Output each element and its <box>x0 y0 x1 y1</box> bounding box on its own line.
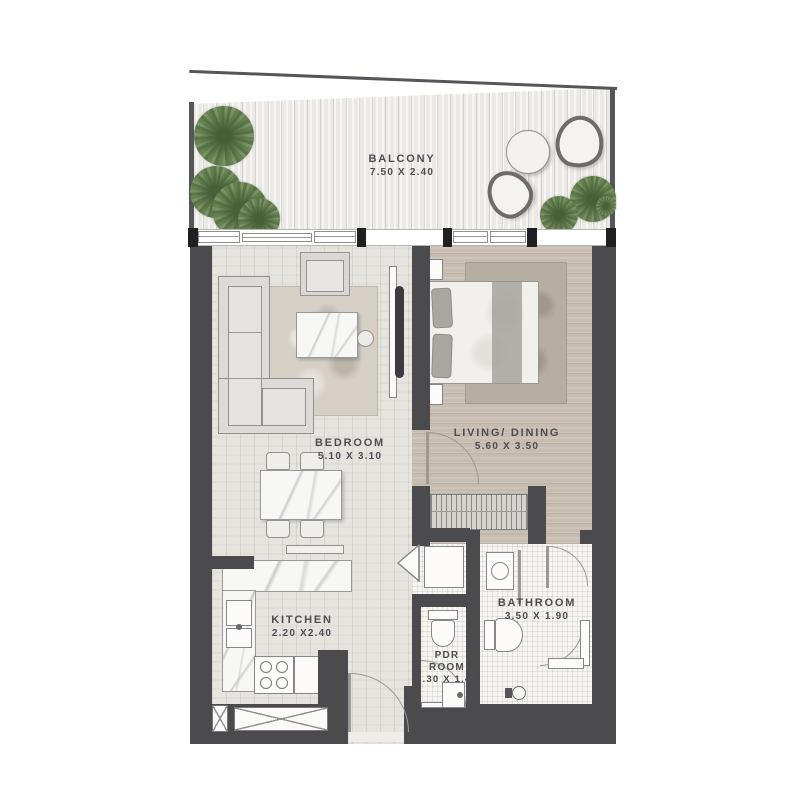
balcony-label: BALCONY 7.50 X 2.40 <box>322 152 482 180</box>
room-name: BALCONY <box>322 152 482 166</box>
window-frame <box>198 231 240 243</box>
burner-icon <box>276 677 288 689</box>
kitchen-cabinet <box>294 656 320 694</box>
sofa-seam <box>229 378 261 379</box>
coffee-table <box>296 312 358 358</box>
sofa-seam <box>229 332 261 333</box>
sofa-seat <box>262 388 306 426</box>
wall <box>212 556 254 569</box>
sideboard <box>286 545 344 554</box>
bedroom-label: BEDROOM 5.10 X 3.10 <box>290 436 410 464</box>
pdr-label: PDR ROOM 2.30 X 1.40 <box>409 650 485 686</box>
room-dims: 3.50 X 1.90 <box>478 610 596 624</box>
bathroom-label: BATHROOM 3.50 X 1.90 <box>478 596 596 624</box>
wardrobe-rail <box>432 511 526 512</box>
dining-table <box>260 470 342 520</box>
wall <box>592 246 616 744</box>
room-dims: 7.50 X 2.40 <box>322 166 482 180</box>
side-table <box>357 330 374 347</box>
wall <box>580 530 594 544</box>
dining-chair <box>266 520 290 538</box>
window-frame <box>314 231 356 243</box>
wall <box>404 704 616 744</box>
wall <box>412 528 470 542</box>
wall <box>412 594 472 607</box>
plant-icon <box>596 196 616 216</box>
washer <box>424 546 464 588</box>
window-post <box>443 228 452 247</box>
faucet-icon <box>236 624 242 630</box>
dining-chair <box>266 452 290 470</box>
window-post <box>357 228 366 247</box>
window-frame <box>490 231 526 243</box>
burner-icon <box>276 661 288 673</box>
pdr-toilet-tank <box>428 610 458 620</box>
entry-door-leaf <box>348 673 351 732</box>
bed-blanket <box>492 282 522 383</box>
hall-cabinet-small <box>212 705 228 732</box>
sofa-seat <box>228 286 262 426</box>
pdr-faucet-icon <box>457 692 463 698</box>
wall <box>404 686 418 712</box>
hall-cabinet <box>234 707 328 731</box>
wall <box>190 246 212 744</box>
pillow <box>431 288 453 329</box>
toilet-tank <box>484 620 495 650</box>
room-name: BATHROOM <box>478 596 596 610</box>
room-dims: 2.20 X2.40 <box>244 627 360 641</box>
shower-bracket <box>505 688 512 698</box>
window-frame <box>453 231 488 243</box>
bathroom-sink-basin <box>491 562 509 580</box>
window-frame <box>242 233 312 242</box>
kitchen-label: KITCHEN 2.20 X2.40 <box>244 613 360 641</box>
tv-icon <box>395 286 404 378</box>
door-swing-icon <box>396 544 420 582</box>
room-dims: 5.10 X 3.10 <box>290 450 410 464</box>
floor-plan-canvas: BALCONY 7.50 X 2.40 BEDROOM 5.10 X 3.10 … <box>0 0 800 800</box>
burner-icon <box>260 677 272 689</box>
pdr-toilet-bowl <box>431 620 455 647</box>
room-name: KITCHEN <box>244 613 360 627</box>
room-dims: 2.30 X 1.40 <box>409 674 485 686</box>
bedroom-door-leaf <box>426 432 429 484</box>
balcony-top-rail <box>189 70 617 90</box>
window-post <box>527 228 537 247</box>
window-post <box>188 228 198 247</box>
room-name: ROOM <box>409 662 485 674</box>
window-post <box>606 228 616 247</box>
balcony-left-rail <box>189 102 194 230</box>
room-name: PDR <box>409 650 485 662</box>
bathroom-door-leaf <box>546 546 549 588</box>
wardrobe <box>430 494 528 530</box>
bath-bench <box>548 658 584 669</box>
shower-head-icon <box>512 686 526 700</box>
entry-threshold <box>349 732 404 742</box>
balcony-round-table <box>506 130 550 174</box>
armchair-seat <box>306 260 344 292</box>
pillow <box>431 334 453 379</box>
room-name: BEDROOM <box>290 436 410 450</box>
wall <box>528 486 546 544</box>
burner-icon <box>260 661 272 673</box>
dining-chair <box>300 520 324 538</box>
wall-divider <box>412 246 430 430</box>
wall <box>318 650 348 704</box>
stove <box>254 656 294 694</box>
plant-icon <box>194 106 254 166</box>
